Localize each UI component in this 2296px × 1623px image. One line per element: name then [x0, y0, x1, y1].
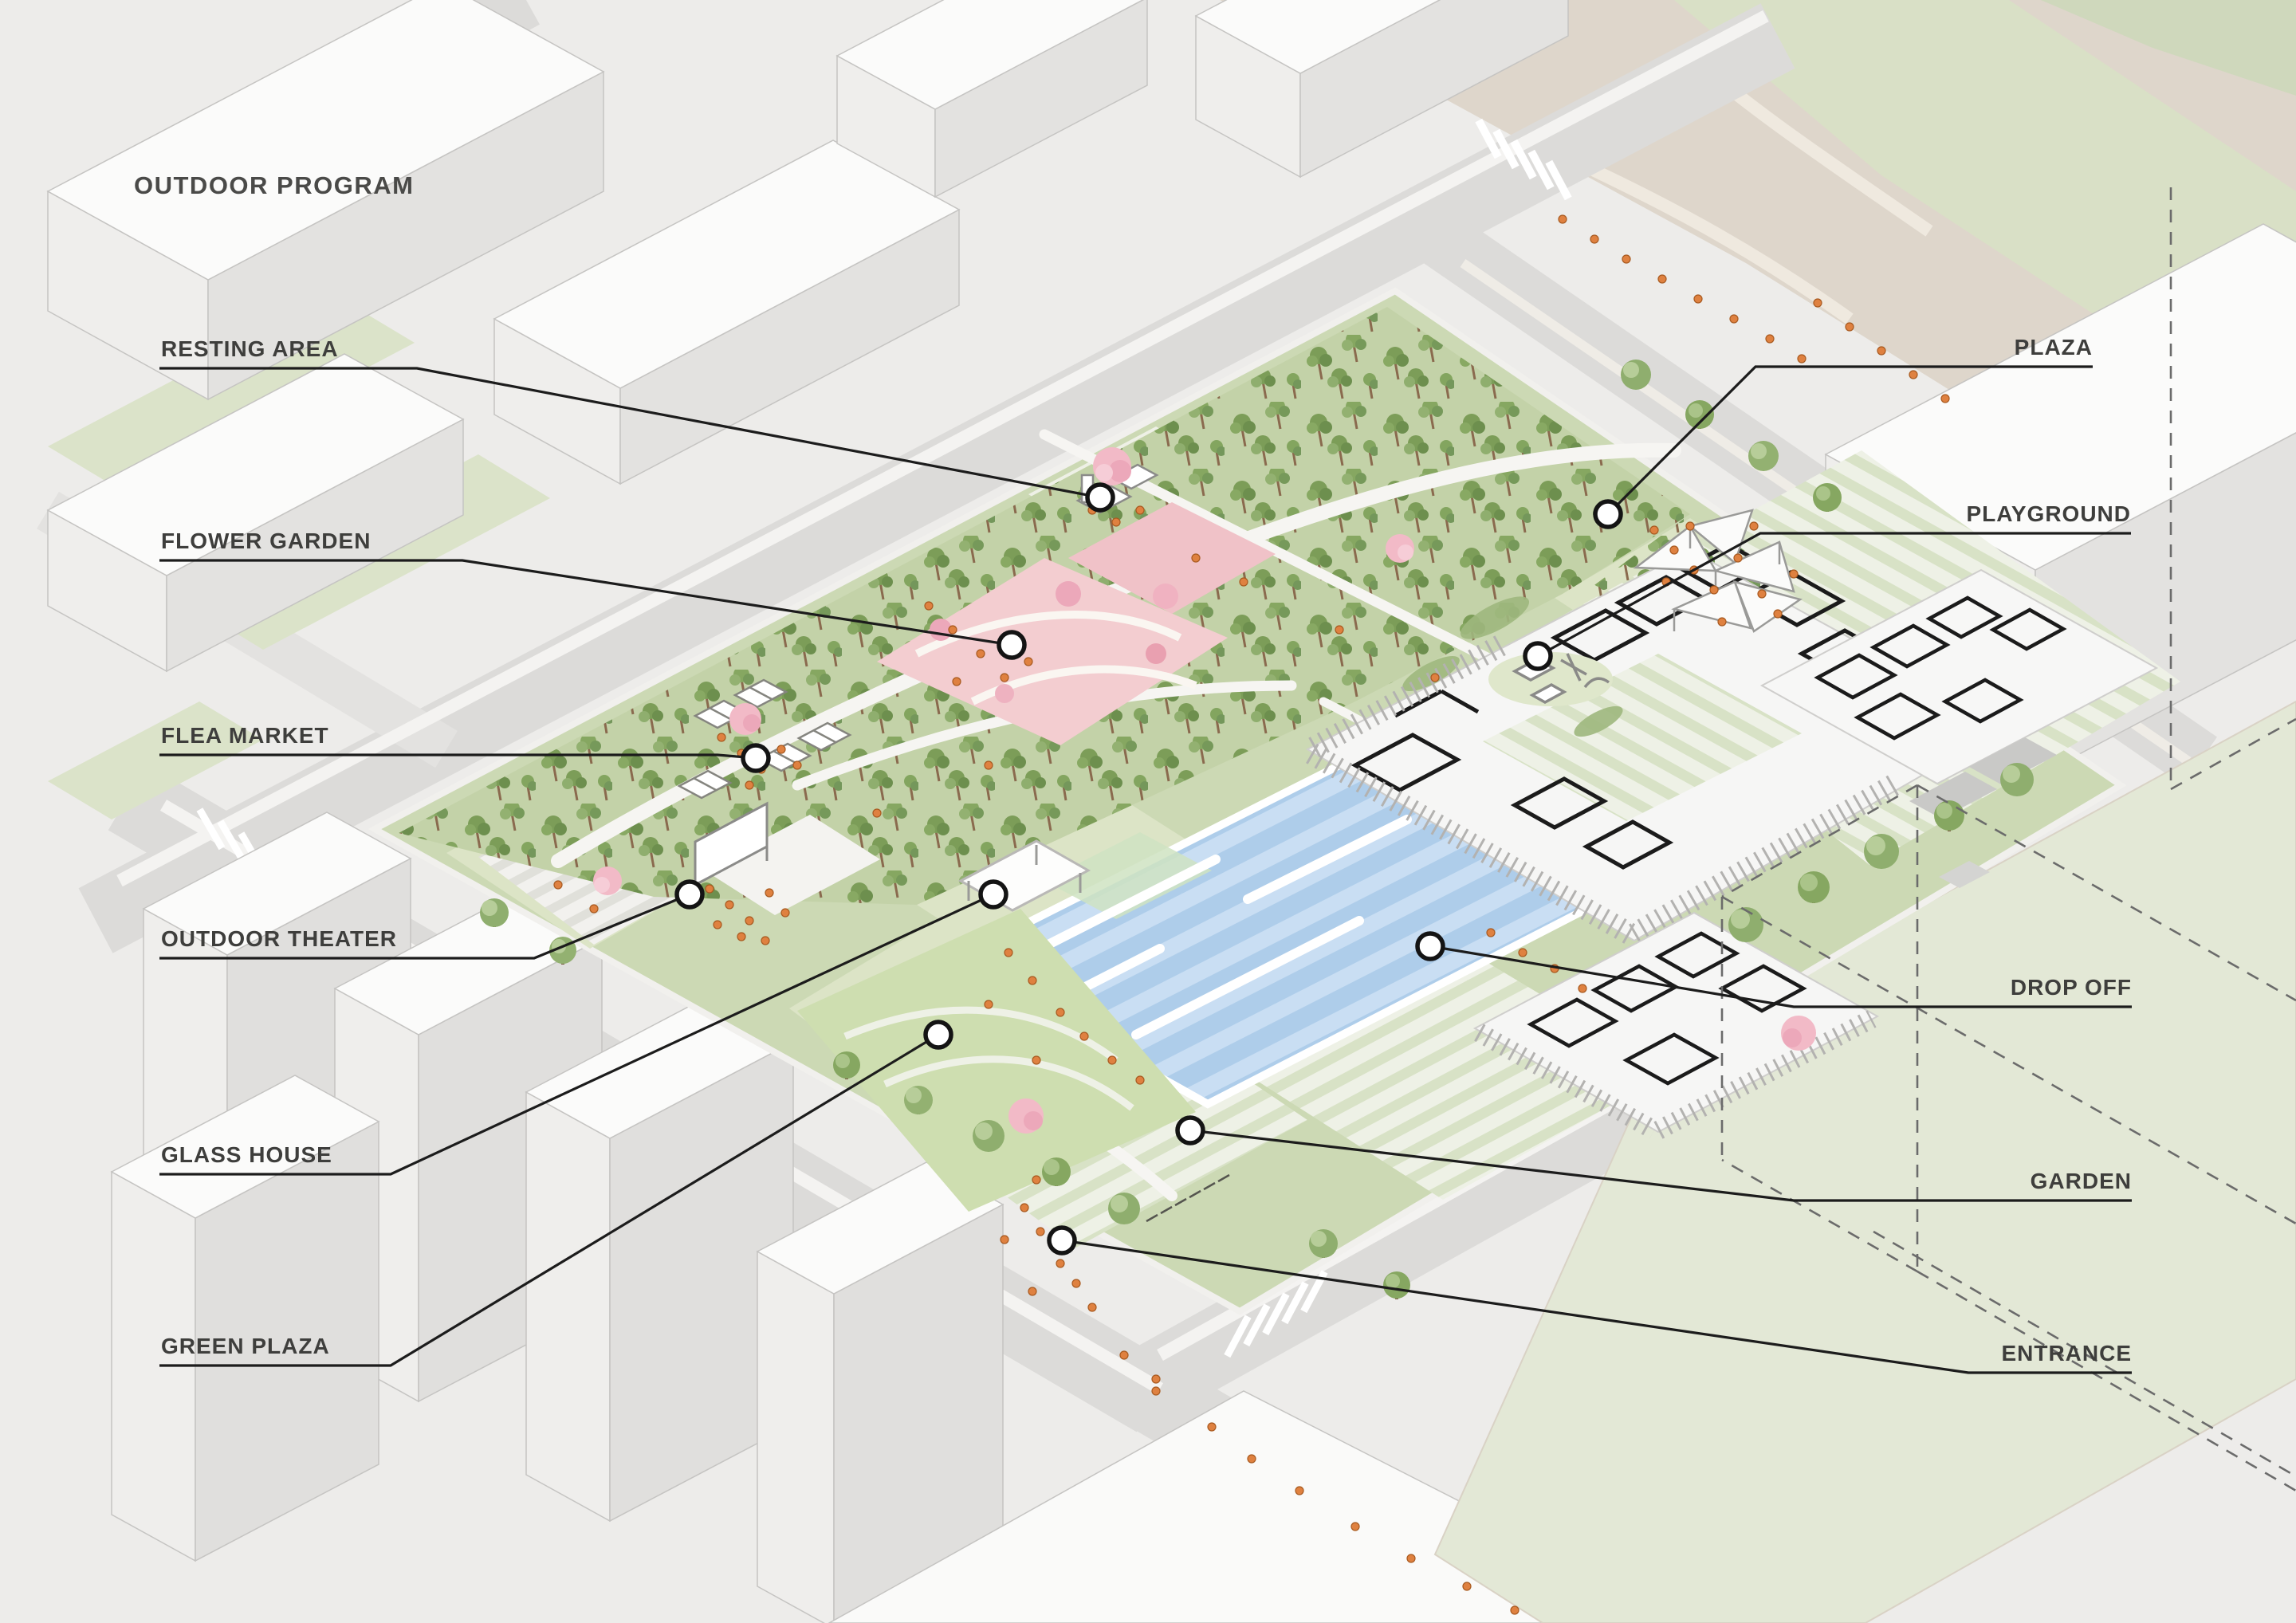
- glass-house-label: GLASS HOUSE: [161, 1142, 332, 1167]
- page-title: OUTDOOR PROGRAM: [134, 171, 414, 199]
- flower-garden-marker: [999, 632, 1024, 658]
- drop-off-marker: [1417, 933, 1443, 959]
- entrance-marker: [1049, 1228, 1075, 1253]
- resting-area-marker: [1087, 485, 1113, 510]
- playground-marker: [1525, 643, 1551, 669]
- entrance-label: ENTRANCE: [2001, 1341, 2132, 1366]
- plaza-marker: [1595, 501, 1621, 527]
- garden-marker: [1177, 1118, 1203, 1143]
- playground-label: PLAYGROUND: [1966, 501, 2131, 526]
- plaza-label: PLAZA: [2015, 335, 2093, 360]
- outdoor-program-diagram: RESTING AREAFLOWER GARDENFLEA MARKETOUTD…: [0, 0, 2296, 1623]
- green-plaza-marker: [926, 1022, 951, 1047]
- glass-house-marker: [981, 882, 1006, 907]
- resting-area-label: RESTING AREA: [161, 336, 339, 361]
- flower-garden-label: FLOWER GARDEN: [161, 529, 371, 553]
- site-axonometric-scene: RESTING AREAFLOWER GARDENFLEA MARKETOUTD…: [0, 0, 2296, 1623]
- flea-market-marker: [743, 745, 769, 771]
- outdoor-theater-marker: [677, 882, 702, 907]
- drop-off-label: DROP OFF: [2011, 975, 2132, 1000]
- green-plaza-label: GREEN PLAZA: [161, 1334, 330, 1358]
- outdoor-theater-label: OUTDOOR THEATER: [161, 926, 397, 951]
- garden-label: GARDEN: [2031, 1169, 2132, 1193]
- flea-market-label: FLEA MARKET: [161, 723, 329, 748]
